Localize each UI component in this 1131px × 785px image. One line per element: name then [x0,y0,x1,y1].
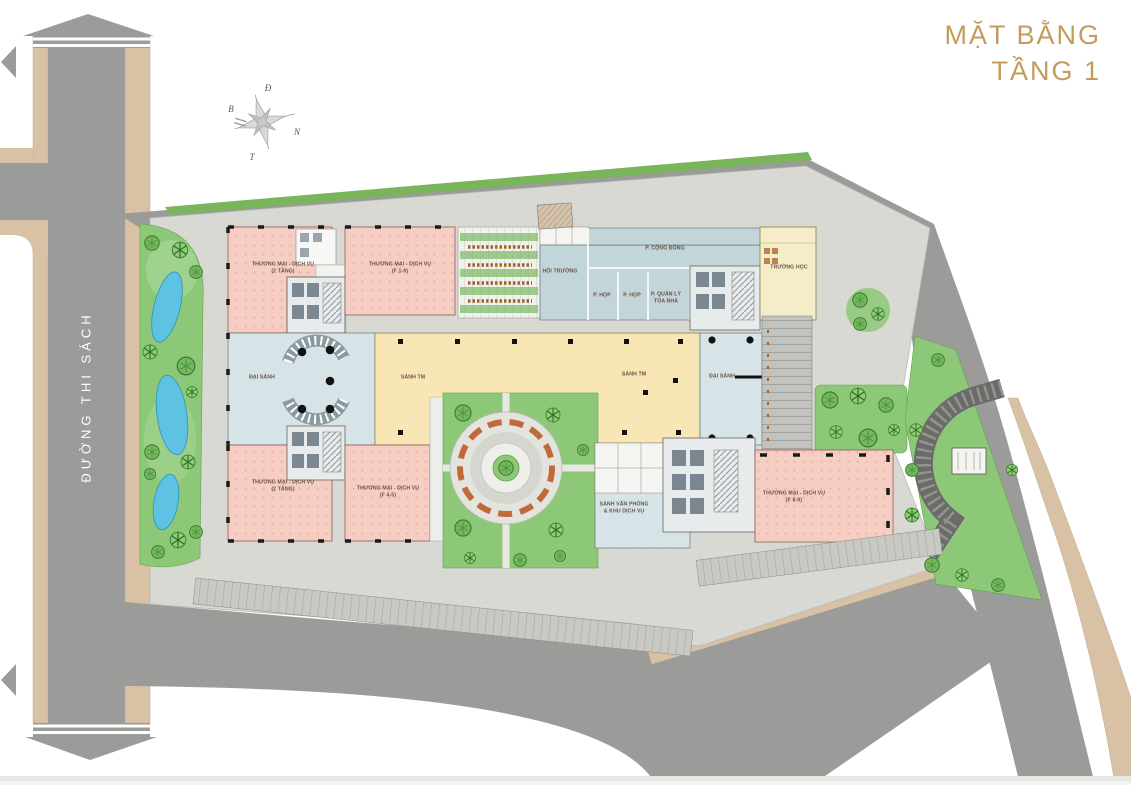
core-southeast [663,438,755,532]
compass-label-north: B [228,104,234,114]
room-label-text: THƯƠNG MẠI - DỊCH VỤ [252,261,314,267]
room-label-retail-n: THƯƠNG MẠI - DỊCH VỤ (F 1-9) [369,261,431,275]
room-label-community: P. CỘNG ĐỒNG [645,246,684,253]
compass-label-west: T [249,152,254,162]
ramp-stair-structure [952,448,986,474]
room-label-text: ĐẠI SẢNH [709,374,735,380]
street-name-label: ĐƯỜNG THI SÁCH [79,311,94,482]
room-label-meeting-2: P. HỌP [623,293,641,300]
site-plan-page: MẶT BẰNG TẦNG 1 ĐƯỜNG THI SÁCH Đ B N T T… [0,0,1131,785]
room-label-management: P. QUẢN LÝ TÒA NHÀ [651,291,681,305]
room-label-sub: & KHU DỊCH VỤ [600,508,649,515]
room-label-school: TRƯỜNG HỌC [770,265,807,272]
room-label-retail-hall-e: SẢNH TM [622,372,646,379]
room-label-text: P. HỌP [623,293,641,299]
room-label-retail-se: THƯƠNG MẠI - DỊCH VỤ (F 8-9) [763,490,825,504]
room-label-text: SẢNH TM [401,375,425,381]
page-title-line2: TẦNG 1 [944,54,1101,90]
room-label-text: THƯƠNG MẠI - DỊCH VỤ [252,479,314,485]
room-label-text: THƯƠNG MẠI - DỊCH VỤ [763,490,825,496]
room-label-text: HỘI TRƯỜNG [542,269,577,275]
room-label-retail-s: THƯƠNG MẠI - DỊCH VỤ (F 4-5) [357,485,419,499]
northeast-tree-cluster [846,288,890,332]
room-label-sub: (F 8-9) [763,497,825,504]
entry-canopy [537,203,573,229]
room-label-lobby-east: ĐẠI SẢNH [709,374,735,381]
road-arrow-up [23,14,154,48]
room-label-sub: (F 1-9) [369,268,431,275]
bike-parking-area [458,227,540,318]
room-label-retail-hall-w: SẢNH TM [401,375,425,382]
room-label-text: THƯƠNG MẠI - DỊCH VỤ [357,485,419,491]
room-label-text: SẢNH TM [622,372,646,378]
road-arrow-down [25,723,157,760]
room-label-office-lobby: SẢNH VĂN PHÒNG & KHU DỊCH VỤ [600,501,649,515]
room-label-sub: (2 TẦNG) [252,268,314,275]
core-southwest [287,426,345,480]
core-northwest [287,277,345,333]
floor-plan-drawing [0,0,1131,785]
central-courtyard [443,393,598,568]
room-label-sub: TÒA NHÀ [651,298,681,305]
room-label-meeting-1: P. HỌP [593,293,611,300]
road-arrow-left-bottom [1,664,16,696]
room-label-retail-nw: THƯƠNG MẠI - DỊCH VỤ (2 TẦNG) [252,261,314,275]
page-title: MẶT BẰNG TẦNG 1 [944,18,1101,89]
room-label-auditorium: HỘI TRƯỜNG [542,269,577,276]
west-park-strip [140,224,203,567]
east-garden [815,385,907,453]
parking-strip-east [762,316,812,458]
compass-label-south: N [294,127,300,137]
room-label-text: TRƯỜNG HỌC [770,265,807,271]
room-label-sub: (2 TẦNG) [252,486,314,493]
room-label-text: ĐẠI SẢNH [249,375,275,381]
room-label-text: THƯƠNG MẠI - DỊCH VỤ [369,261,431,267]
block-lobby-east [700,333,762,445]
compass-rose [228,87,302,156]
room-label-sub: (F 4-5) [357,492,419,499]
room-label-text: P. CỘNG ĐỒNG [645,246,684,252]
compass-label-east: Đ [265,83,272,93]
block-school [760,227,816,320]
room-label-lobby-west: ĐẠI SẢNH [249,375,275,382]
core-northeast [690,266,760,330]
room-label-retail-sw: THƯƠNG MẠI - DỊCH VỤ (2 TẦNG) [252,479,314,493]
room-label-text: P. QUẢN LÝ [651,291,681,297]
room-label-text: SẢNH VĂN PHÒNG [600,501,649,507]
page-title-line1: MẶT BẰNG [944,18,1101,54]
road-arrow-left-top [1,46,16,78]
room-label-text: P. HỌP [593,293,611,299]
